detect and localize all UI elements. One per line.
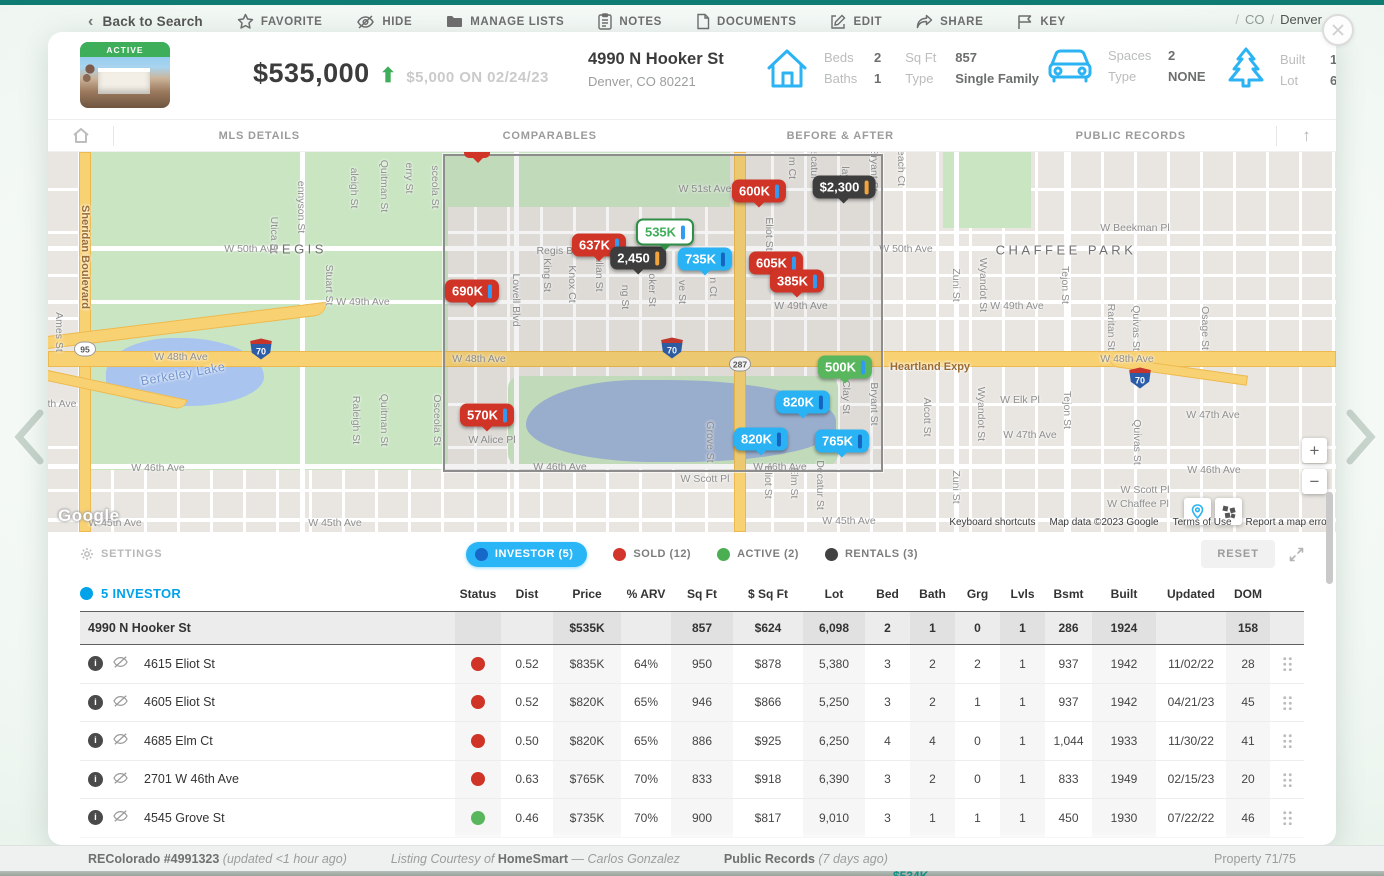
detail-tabbar: MLS DETAILSCOMPARABLESBEFORE & AFTERPUBL… bbox=[48, 120, 1336, 152]
cell-lot: 5,380 bbox=[803, 645, 865, 683]
favorite-button[interactable]: FAVORITE bbox=[237, 13, 322, 30]
marker-bubble: 385K bbox=[770, 270, 824, 293]
type-label: Type bbox=[905, 71, 947, 86]
marker-bar-icon bbox=[681, 225, 685, 239]
cell-built: 1924 bbox=[1092, 612, 1156, 644]
documents-button[interactable]: DOCUMENTS bbox=[696, 13, 797, 30]
info-icon[interactable]: i bbox=[88, 810, 103, 825]
route-shield-icon: 95 bbox=[74, 342, 96, 357]
cell-lvls: 1 bbox=[1000, 761, 1045, 799]
marker-tail bbox=[592, 255, 606, 269]
marker-tail bbox=[698, 269, 712, 283]
marker-bar-icon bbox=[861, 360, 865, 374]
background-marker-peek: $534K bbox=[893, 869, 928, 876]
map-marker-sold[interactable]: 570K bbox=[460, 404, 514, 427]
lot-label: Lot bbox=[1280, 73, 1322, 88]
property-photo[interactable]: ACTIVE bbox=[80, 42, 170, 108]
map-street-label: Quitman St bbox=[378, 160, 390, 213]
map-street-label: W Chaffee Pl bbox=[1107, 498, 1169, 510]
map-street-label: Raleigh St bbox=[350, 396, 362, 444]
cell-arv: 64% bbox=[621, 645, 671, 683]
marker-bar-icon bbox=[721, 252, 725, 266]
drag-handle-icon[interactable] bbox=[1282, 733, 1293, 748]
tree-icon bbox=[1226, 46, 1266, 94]
prev-property-button[interactable] bbox=[12, 408, 46, 471]
legend-sold[interactable]: SOLD (12) bbox=[613, 548, 691, 561]
cell-grg: 1 bbox=[955, 799, 1000, 837]
toolbar-label: SHARE bbox=[940, 16, 983, 28]
map-marker-partial[interactable] bbox=[464, 152, 490, 158]
column-header-psqft[interactable]: $ Sq Ft bbox=[733, 576, 803, 611]
cell-bed: 3 bbox=[865, 684, 910, 722]
marker-tail bbox=[752, 201, 766, 215]
map-marker-sold[interactable]: 690K bbox=[445, 280, 499, 303]
i70-shield-icon: 70 bbox=[1129, 368, 1152, 389]
map-street-label: W 49th Ave bbox=[990, 300, 1044, 312]
marker-bar-icon bbox=[792, 256, 796, 270]
legend-label: ACTIVE (2) bbox=[737, 548, 799, 560]
column-header-lot[interactable]: Lot bbox=[803, 576, 865, 611]
map-street-label: ennyson St bbox=[295, 181, 307, 234]
info-icon[interactable]: i bbox=[88, 656, 103, 671]
cell-price: $535K bbox=[553, 612, 621, 644]
public-records-age: (7 days ago) bbox=[818, 852, 887, 866]
courtesy-prefix: Listing Courtesy of bbox=[391, 852, 495, 866]
cell-bed: 4 bbox=[865, 722, 910, 760]
cell-bed: 3 bbox=[865, 761, 910, 799]
zoom-out-button[interactable]: − bbox=[1302, 469, 1327, 494]
marker-price: 385K bbox=[777, 274, 808, 289]
share-button[interactable]: SHARE bbox=[916, 13, 983, 30]
map-street-label: Wyandot St bbox=[977, 258, 989, 312]
column-header-updated[interactable]: Updated bbox=[1156, 576, 1226, 611]
address-cell: i4685 Elm Ct bbox=[80, 722, 455, 760]
comps-table-title-label: 5 INVESTOR bbox=[101, 586, 181, 601]
courtesy-agent: — Carlos Gonzalez bbox=[572, 852, 680, 866]
cell-price: $765K bbox=[553, 761, 621, 799]
table-row[interactable]: i4605 Eliot St0.52$820K65%946$8665,25032… bbox=[80, 684, 1304, 723]
share-icon bbox=[916, 14, 933, 29]
column-header-sqft[interactable]: Sq Ft bbox=[671, 576, 733, 611]
hide-comp-icon[interactable] bbox=[112, 771, 129, 788]
cell-sqft: 946 bbox=[671, 684, 733, 722]
subject-row[interactable]: 4990 N Hooker St$535K857$6246,0982101286… bbox=[80, 611, 1304, 645]
map-street-label: Elm St bbox=[788, 468, 800, 499]
toolbar-label: EDIT bbox=[853, 16, 882, 28]
notes-button[interactable]: NOTES bbox=[598, 13, 662, 30]
cell-bsmt: 937 bbox=[1045, 645, 1092, 683]
keyboard-shortcuts-link[interactable]: Keyboard shortcuts bbox=[949, 517, 1035, 528]
close-button[interactable] bbox=[1322, 14, 1354, 46]
marker-bubble: 820K bbox=[776, 391, 830, 414]
cell-sqft: 857 bbox=[671, 612, 733, 644]
drag-handle-icon[interactable] bbox=[1282, 656, 1293, 671]
column-header-price[interactable]: Price bbox=[553, 576, 621, 611]
status-dot-sold bbox=[471, 734, 485, 748]
marker-bar-icon bbox=[488, 284, 492, 298]
status-dot-sold bbox=[471, 695, 485, 709]
tab-comparables[interactable]: COMPARABLES bbox=[405, 130, 696, 142]
map-street-label: each Ct bbox=[895, 152, 907, 186]
garage-type-value: NONE bbox=[1168, 69, 1206, 84]
marker-tail bbox=[465, 301, 479, 315]
toolbar-label: DOCUMENTS bbox=[717, 16, 797, 28]
photo-decoration bbox=[98, 68, 150, 94]
map-street-label: W Scott Pl bbox=[1120, 484, 1169, 496]
status-dot-sold bbox=[471, 657, 485, 671]
cell-sqft: 950 bbox=[671, 645, 733, 683]
beds-label: Beds bbox=[824, 50, 866, 65]
price-change: $5,000 ON 02/24/23 bbox=[406, 69, 548, 86]
marker-bubble: 535K bbox=[636, 219, 694, 246]
tab-home[interactable] bbox=[48, 126, 114, 146]
cell-bath: 2 bbox=[910, 684, 955, 722]
baths-label: Baths bbox=[824, 71, 866, 86]
cell-sqft: 900 bbox=[671, 799, 733, 837]
next-property-button[interactable] bbox=[1344, 408, 1378, 471]
comps-table-title: 5 INVESTOR bbox=[80, 586, 181, 601]
column-header-status[interactable]: Status bbox=[455, 576, 501, 611]
column-header-bath[interactable]: Bath bbox=[910, 576, 955, 611]
comps-table: 5 INVESTORStatusDistPrice% ARVSq Ft$ Sq … bbox=[48, 576, 1336, 845]
map-marker-investor[interactable]: 765K bbox=[815, 430, 869, 453]
list-price: $535,000 bbox=[253, 58, 370, 89]
comps-legend-bar: SETTINGS INVESTOR (5)SOLD (12)ACTIVE (2)… bbox=[48, 532, 1336, 576]
column-header-bsmt[interactable]: Bsmt bbox=[1045, 576, 1092, 611]
drag-cell bbox=[1270, 684, 1304, 722]
public-records-label: Public Records bbox=[724, 852, 815, 866]
marker-price: 820K bbox=[783, 395, 814, 410]
column-header-arv[interactable]: % ARV bbox=[621, 576, 671, 611]
table-row[interactable]: i2701 W 46th Ave0.63$765K70%833$9186,390… bbox=[80, 761, 1304, 800]
cell-updated bbox=[1156, 612, 1226, 644]
cell-dom: 158 bbox=[1226, 612, 1270, 644]
folder-icon bbox=[446, 14, 463, 29]
cell-updated: 04/21/23 bbox=[1156, 684, 1226, 722]
toolbar-label: FAVORITE bbox=[261, 16, 322, 28]
marker-tail bbox=[658, 244, 672, 258]
terms-link[interactable]: Terms of Use bbox=[1173, 517, 1232, 528]
table-row[interactable]: i4545 Grove St0.46$735K70%900$8179,01031… bbox=[80, 799, 1304, 838]
address-cell: i2701 W 46th Ave bbox=[80, 761, 455, 799]
house-icon bbox=[764, 46, 810, 90]
row-address: 4545 Grove St bbox=[144, 811, 225, 825]
cell-dist: 0.52 bbox=[501, 684, 553, 722]
cell-sqft: 886 bbox=[671, 722, 733, 760]
hide-button[interactable]: HIDE bbox=[356, 13, 412, 30]
cell-arv: 65% bbox=[621, 684, 671, 722]
tab-public-records[interactable]: PUBLIC RECORDS bbox=[986, 130, 1277, 142]
marker-bubble: 500K bbox=[818, 356, 872, 379]
expand-icon[interactable] bbox=[1289, 547, 1304, 562]
cell-dom: 41 bbox=[1226, 722, 1270, 760]
map-street-label: Quitman St bbox=[378, 394, 390, 447]
marker-bubble: 820K bbox=[734, 428, 788, 451]
cell-dist bbox=[501, 612, 553, 644]
map-street-label: W Beekman Pl bbox=[1100, 222, 1169, 234]
column-header-grg[interactable]: Grg bbox=[955, 576, 1000, 611]
manage-lists-button[interactable]: MANAGE LISTS bbox=[446, 13, 564, 30]
property-header: ACTIVE $535,000 ⬆ $5,000 ON 02/24/23 499… bbox=[48, 32, 1336, 120]
google-logo: Google bbox=[58, 506, 120, 526]
map-street-label: Sheridan Boulevard bbox=[79, 205, 91, 309]
hide-comp-icon[interactable] bbox=[112, 655, 129, 672]
table-row[interactable]: i4685 Elm Ct0.50$820K65%886$9256,2504401… bbox=[80, 722, 1304, 761]
map-marker-subject[interactable]: 535K bbox=[636, 219, 694, 246]
built-value: 1924 bbox=[1330, 52, 1336, 67]
marker-price: 600K bbox=[739, 184, 770, 199]
cell-bed: 3 bbox=[865, 799, 910, 837]
toolbar-label: HIDE bbox=[382, 16, 412, 28]
cell-psqft: $918 bbox=[733, 761, 803, 799]
scroll-top-button[interactable]: ↑ bbox=[1276, 126, 1336, 146]
home-icon bbox=[72, 127, 90, 144]
marker-tail bbox=[835, 451, 849, 465]
marker-price: 637K bbox=[579, 238, 610, 253]
minus-icon: − bbox=[1310, 472, 1320, 492]
built-label: Built bbox=[1280, 52, 1322, 67]
map-street-label: W Scott Pl bbox=[680, 473, 729, 485]
map-street-label: W 48th Ave bbox=[154, 351, 208, 363]
cell-grg: 2 bbox=[955, 645, 1000, 683]
map-marker-rental[interactable]: $2,300 bbox=[813, 176, 876, 199]
marker-bar-icon bbox=[819, 395, 823, 409]
toolbar-label: KEY bbox=[1040, 16, 1065, 28]
map-street-label: Utica St bbox=[268, 217, 280, 254]
map-marker-active[interactable]: 500K bbox=[818, 356, 872, 379]
map-street-label: W 49th Ave bbox=[336, 296, 390, 308]
cell-lvls: 1 bbox=[1000, 684, 1045, 722]
marker-bubble: $2,300 bbox=[813, 176, 876, 199]
drag-cell bbox=[1270, 799, 1304, 837]
map-marker-investor[interactable]: 735K bbox=[678, 248, 732, 271]
marker-bubble: 570K bbox=[460, 404, 514, 427]
map-street-label: Osceola St bbox=[431, 394, 443, 445]
marker-price: 570K bbox=[467, 408, 498, 423]
cell-price: $735K bbox=[553, 799, 621, 837]
column-header-bed[interactable]: Bed bbox=[865, 576, 910, 611]
cell-status bbox=[455, 684, 501, 722]
marker-bubble: 735K bbox=[678, 248, 732, 271]
cell-built: 1933 bbox=[1092, 722, 1156, 760]
plus-icon: + bbox=[1310, 441, 1320, 461]
card-scrollbar[interactable] bbox=[1326, 492, 1333, 584]
cell-psqft: $624 bbox=[733, 612, 803, 644]
cell-dist: 0.46 bbox=[501, 799, 553, 837]
sqft-value: 857 bbox=[955, 50, 977, 65]
cell-arv bbox=[621, 612, 671, 644]
cell-psqft: $817 bbox=[733, 799, 803, 837]
map-attribution: Keyboard shortcutsMap data ©2023 GoogleT… bbox=[949, 517, 1330, 528]
column-header-spacer bbox=[1270, 576, 1304, 611]
status-dot-sold bbox=[471, 772, 485, 786]
spaces-label: Spaces bbox=[1108, 48, 1160, 63]
marker-bar-icon bbox=[503, 408, 507, 422]
drag-handle-icon[interactable] bbox=[1282, 772, 1293, 787]
map-street-label: W 46th Ave bbox=[131, 462, 185, 474]
column-header-dom[interactable]: DOM bbox=[1226, 576, 1270, 611]
map-street-label: W 45th Ave bbox=[308, 517, 362, 529]
brand-top-strip bbox=[0, 0, 1384, 5]
edit-button[interactable]: EDIT bbox=[830, 13, 882, 30]
address-cell: i4615 Eliot St bbox=[80, 645, 455, 683]
address-cell: i4545 Grove St bbox=[80, 799, 455, 837]
column-header-lvls[interactable]: Lvls bbox=[1000, 576, 1045, 611]
map-street-label: CHAFFEE PARK bbox=[996, 243, 1137, 258]
row-address: 2701 W 46th Ave bbox=[144, 772, 239, 786]
cell-lvls: 1 bbox=[1000, 612, 1045, 644]
cell-built: 1942 bbox=[1092, 684, 1156, 722]
tab-before-after[interactable]: BEFORE & AFTER bbox=[695, 130, 986, 142]
map-street-label: W 45th Ave bbox=[822, 515, 876, 527]
map-street-label: Zuni St bbox=[950, 268, 962, 301]
cell-built: 1949 bbox=[1092, 761, 1156, 799]
map-street-label: W 46th Ave bbox=[1187, 464, 1241, 476]
legend-investor[interactable]: INVESTOR (5) bbox=[466, 542, 588, 567]
price-up-arrow-icon: ⬆ bbox=[380, 63, 397, 88]
document-icon bbox=[696, 13, 710, 30]
cell-dom: 46 bbox=[1226, 799, 1270, 837]
map-street-label: W 50th Ave bbox=[879, 243, 933, 255]
page-bottom-edge bbox=[0, 871, 1384, 876]
info-icon[interactable]: i bbox=[88, 772, 103, 787]
reset-button[interactable]: RESET bbox=[1201, 540, 1275, 568]
map-street-label: Quivas St bbox=[1130, 305, 1142, 351]
back-to-search-label: Back to Search bbox=[103, 14, 203, 29]
breadcrumb-city[interactable]: Denver bbox=[1280, 12, 1322, 27]
legend-label: SOLD (12) bbox=[633, 548, 691, 560]
cell-bed: 3 bbox=[865, 645, 910, 683]
mls-number: REColorado #4991323 bbox=[88, 852, 219, 866]
property-address: 4990 N Hooker St bbox=[588, 50, 724, 69]
cell-lot: 5,250 bbox=[803, 684, 865, 722]
drag-cell bbox=[1270, 761, 1304, 799]
info-icon[interactable]: i bbox=[88, 733, 103, 748]
cell-price: $835K bbox=[553, 645, 621, 683]
map-marker-sold[interactable]: 600K bbox=[732, 180, 786, 203]
back-to-search-button[interactable]: ‹ Back to Search bbox=[88, 13, 203, 31]
cell-price: $820K bbox=[553, 684, 621, 722]
map-street-label: Zuni St bbox=[950, 470, 962, 503]
marker-bubble: 765K bbox=[815, 430, 869, 453]
tab-mls-details[interactable]: MLS DETAILS bbox=[114, 130, 405, 142]
flag-icon bbox=[1017, 14, 1033, 30]
report-error-link[interactable]: Report a map error bbox=[1246, 517, 1330, 528]
cell-grg: 0 bbox=[955, 722, 1000, 760]
row-address: 4605 Eliot St bbox=[144, 695, 215, 709]
map-marker-sold[interactable]: 385K bbox=[770, 270, 824, 293]
marker-tail bbox=[838, 377, 852, 391]
key-button[interactable]: KEY bbox=[1017, 13, 1065, 30]
marker-price: $2,300 bbox=[820, 180, 860, 195]
breadcrumb-state[interactable]: CO bbox=[1245, 12, 1265, 27]
marker-price: 605K bbox=[756, 256, 787, 271]
marker-bubble: 690K bbox=[445, 280, 499, 303]
map-street-label: W 47th Ave bbox=[1186, 409, 1240, 421]
marker-bar-icon bbox=[864, 180, 868, 194]
page-footer: REColorado #4991323 (updated <1 hour ago… bbox=[0, 845, 1384, 871]
cell-arv: 65% bbox=[621, 722, 671, 760]
eye-off-icon bbox=[356, 14, 375, 30]
marker-tail bbox=[754, 449, 768, 463]
marker-price: 765K bbox=[822, 434, 853, 449]
cell-lvls: 1 bbox=[1000, 799, 1045, 837]
map-street-label: Osage St bbox=[1199, 306, 1211, 350]
cell-arv: 70% bbox=[621, 761, 671, 799]
map-street-label: Tejon St bbox=[1061, 391, 1073, 429]
marker-tail bbox=[796, 412, 810, 426]
cell-bsmt: 937 bbox=[1045, 684, 1092, 722]
row-address: 4685 Elm Ct bbox=[144, 734, 213, 748]
star-icon bbox=[237, 13, 254, 30]
status-dot-active bbox=[471, 811, 485, 825]
cell-psqft: $925 bbox=[733, 722, 803, 760]
cell-bsmt: 286 bbox=[1045, 612, 1092, 644]
cell-lot: 6,250 bbox=[803, 722, 865, 760]
map-marker-investor[interactable]: 820K bbox=[776, 391, 830, 414]
settings-button[interactable]: SETTINGS bbox=[80, 547, 162, 561]
chevron-left-icon: ‹ bbox=[88, 13, 94, 31]
spaces-value: 2 bbox=[1168, 48, 1175, 63]
cell-updated: 11/02/22 bbox=[1156, 645, 1226, 683]
column-header-dist[interactable]: Dist bbox=[501, 576, 553, 611]
comps-map[interactable]: W 51st AveW 50th AveREGISRegis BlW 50th … bbox=[48, 152, 1336, 532]
marker-price: 535K bbox=[645, 225, 676, 240]
column-header-built[interactable]: Built bbox=[1092, 576, 1156, 611]
marker-bar-icon bbox=[775, 184, 779, 198]
table-row[interactable]: i4615 Eliot St0.52$835K64%950$8785,38032… bbox=[80, 645, 1304, 684]
chevron-right-icon bbox=[1344, 408, 1378, 466]
hide-comp-icon[interactable] bbox=[112, 732, 129, 749]
cell-updated: 07/22/22 bbox=[1156, 799, 1226, 837]
breadcrumb-sep: / bbox=[1235, 12, 1239, 27]
hide-comp-icon[interactable] bbox=[112, 694, 129, 711]
cell-arv: 70% bbox=[621, 799, 671, 837]
property-city-line: Denver, CO 80221 bbox=[588, 74, 724, 89]
sqft-label: Sq Ft bbox=[905, 50, 947, 65]
cell-status bbox=[455, 722, 501, 760]
car-icon bbox=[1046, 46, 1094, 86]
map-street-label: Quivas St bbox=[1131, 419, 1143, 465]
cell-psqft: $866 bbox=[733, 684, 803, 722]
drag-handle-icon[interactable] bbox=[1282, 810, 1293, 825]
map-street-label: Wyandot St bbox=[975, 387, 987, 441]
address-cell: i4605 Eliot St bbox=[80, 684, 455, 722]
chevron-left-icon bbox=[12, 408, 46, 466]
marker-bar-icon bbox=[813, 274, 817, 288]
baths-value: 1 bbox=[874, 71, 881, 86]
legend-active[interactable]: ACTIVE (2) bbox=[717, 548, 799, 561]
cell-bath: 4 bbox=[910, 722, 955, 760]
cell-dist: 0.52 bbox=[501, 645, 553, 683]
hide-comp-icon[interactable] bbox=[112, 809, 129, 826]
zoom-in-button[interactable]: + bbox=[1302, 438, 1327, 463]
row-address: 4990 N Hooker St bbox=[88, 621, 191, 635]
garage-type-label: Type bbox=[1108, 69, 1160, 84]
map-marker-investor[interactable]: 820K bbox=[734, 428, 788, 451]
drag-handle-icon[interactable] bbox=[1282, 695, 1293, 710]
gear-icon bbox=[80, 547, 94, 561]
marker-price: 820K bbox=[741, 432, 772, 447]
mls-updated: (updated <1 hour ago) bbox=[223, 852, 347, 866]
marker-bar-icon bbox=[858, 434, 862, 448]
marker-tail bbox=[480, 425, 494, 439]
info-icon[interactable]: i bbox=[88, 695, 103, 710]
settings-label: SETTINGS bbox=[101, 548, 162, 560]
status-badge: ACTIVE bbox=[80, 42, 170, 57]
map-street-label: Alcott St bbox=[921, 397, 933, 436]
legend-rentals[interactable]: RENTALS (3) bbox=[825, 548, 918, 561]
